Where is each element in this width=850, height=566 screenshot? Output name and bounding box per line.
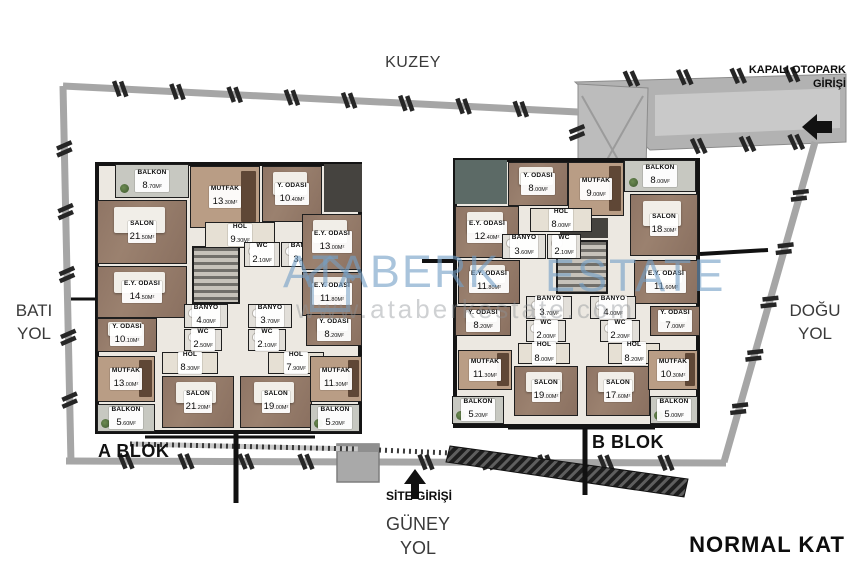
- room: BALKON5.20M²: [452, 396, 504, 424]
- room-area: 11.30M²: [473, 364, 497, 381]
- room-label: WC2.10M²: [255, 329, 278, 352]
- fence-post: [62, 400, 77, 406]
- room: SALON18.30M²: [630, 194, 698, 256]
- fence-post: [114, 81, 119, 96]
- room-area: 3.70M²: [539, 302, 558, 319]
- fence-post: [778, 244, 794, 246]
- room: SALON19.00M²: [514, 366, 578, 416]
- room: SALON19.00M²: [240, 376, 312, 428]
- fence-post: [60, 275, 75, 281]
- room-area: 2.10M²: [554, 241, 573, 258]
- room-area: 19.00M²: [264, 396, 289, 413]
- room-label: HOL8.00M²: [532, 342, 555, 365]
- room-area: 11.30M²: [324, 373, 348, 390]
- room-label: E.Y. ODASI11.80M²: [312, 283, 352, 306]
- fence-post: [732, 404, 748, 406]
- room-area: 11.80M²: [320, 288, 344, 305]
- site-entrance-label: SİTE GİRİŞİ: [364, 489, 474, 503]
- room-area: 5.00M²: [664, 404, 683, 421]
- room-area: 2.50M²: [193, 334, 212, 351]
- fence-post: [419, 455, 425, 470]
- fence-post: [407, 96, 412, 111]
- room-area: 8.20M²: [473, 315, 492, 332]
- room-area: 10.30M²: [661, 364, 686, 381]
- link-wall: [700, 250, 768, 254]
- fence-post: [58, 212, 73, 218]
- fence-post: [400, 96, 405, 111]
- fence-post: [60, 268, 75, 274]
- south-road-line2: YOL: [400, 538, 436, 558]
- room-label: HOL8.30M²: [178, 352, 201, 375]
- room: BALKON8.00M²: [624, 160, 696, 192]
- room: BALKON8.70M²: [115, 164, 189, 198]
- room-area: 8.00M²: [534, 348, 553, 365]
- room-area: 7.90M²: [286, 357, 305, 374]
- fence-post: [343, 93, 348, 108]
- room: Y. ODASI8.20M²: [306, 314, 362, 346]
- page-title: NORMAL KAT: [689, 532, 845, 558]
- fence-post: [178, 84, 183, 99]
- room-label: WC2.20M²: [608, 320, 631, 343]
- fence-post: [171, 84, 176, 99]
- room-area: 13.00M²: [320, 236, 345, 253]
- room-area: 7.00M²: [665, 315, 684, 332]
- room-label: Y. ODASI7.00M²: [658, 310, 691, 333]
- room-label: BANYO3.70M²: [535, 296, 563, 319]
- room-label: Y. ODASI8.20M²: [317, 319, 350, 342]
- room-area: 13.30M²: [213, 191, 238, 208]
- room-label: SALON18.30M²: [650, 214, 679, 237]
- fence-post: [299, 454, 305, 469]
- room: MUTFAK11.30M²: [458, 350, 512, 390]
- fence-post: [186, 454, 192, 469]
- room-area: 3.70M²: [260, 310, 279, 327]
- room-label: MUTFAK10.30M²: [657, 359, 689, 382]
- room: Y. ODASI8.00M²: [508, 162, 568, 206]
- room: SALON17.60M²: [586, 366, 650, 416]
- block-name-label: A BLOK: [98, 441, 169, 462]
- parking-entrance-line1: KAPALI OTOPARK: [749, 64, 846, 76]
- fence-post: [179, 454, 185, 469]
- room-label: BALKON5.00M²: [657, 399, 690, 422]
- room-area: 8.20M²: [624, 348, 643, 365]
- room-label: HOL7.90M²: [284, 352, 307, 375]
- fence-post: [515, 101, 520, 116]
- room-area: 4.00M²: [196, 310, 215, 327]
- room: WC2.00M²: [526, 320, 566, 342]
- room: Y. ODASI8.20M²: [455, 306, 511, 336]
- room-label: WC2.10M²: [250, 243, 273, 266]
- room-label: BANYO3.60M²: [510, 235, 538, 258]
- fence-post: [306, 454, 312, 469]
- room-label: BANYO4.00M²: [192, 305, 220, 328]
- room-area: 14.50M²: [130, 286, 155, 303]
- fence-post: [776, 251, 792, 253]
- south-road-line1: GÜNEY: [386, 514, 450, 534]
- fence-post: [763, 298, 779, 300]
- room-area: 13.00M²: [114, 373, 139, 390]
- room-area: 17.60M²: [606, 385, 631, 402]
- parking-entrance-line2: GİRİŞİ: [813, 78, 846, 90]
- room: Y. ODASI7.00M²: [650, 306, 700, 336]
- room-label: BALKON5.60M²: [109, 407, 142, 430]
- room: WC2.20M²: [600, 320, 640, 342]
- room-label: HOL8.00M²: [549, 209, 572, 232]
- room-area: 2.20M²: [610, 325, 629, 342]
- fence-post: [457, 99, 462, 114]
- entry-fence: [379, 450, 450, 453]
- north-wall: [63, 86, 578, 112]
- fence-post: [293, 90, 298, 105]
- room-area: 5.60M²: [116, 412, 135, 429]
- room-label: BANYO3.70M²: [256, 305, 284, 328]
- stair-core: [192, 246, 240, 304]
- room-label: BALKON5.20M²: [461, 399, 494, 422]
- wall-mass: [455, 160, 507, 204]
- room: Y. ODASI10.10M²: [97, 318, 157, 352]
- room-label: MUTFAK11.30M²: [469, 359, 501, 382]
- fence-post: [745, 358, 761, 360]
- room-area: 21.50M²: [130, 226, 155, 243]
- block-name-label: B BLOK: [592, 432, 664, 453]
- room-label: BALKON8.70M²: [135, 170, 168, 193]
- room: MUTFAK13.00M²: [97, 356, 155, 402]
- room: WC2.10M²: [244, 242, 280, 267]
- wall-mass: [324, 164, 362, 212]
- room-label: Y. ODASI10.40M²: [275, 183, 308, 206]
- room: E.Y. ODASI11.80M²: [302, 272, 362, 316]
- room-area: 8.00M²: [650, 170, 669, 187]
- room: BANYO3.70M²: [526, 296, 572, 319]
- room-area: 8.70M²: [142, 175, 161, 192]
- room-label: MUTFAK13.30M²: [209, 186, 241, 209]
- room: BANYO3.70M²: [248, 304, 292, 328]
- fence-post: [426, 455, 432, 470]
- room: E.Y. ODASI11.60M²: [634, 260, 698, 304]
- room: HOL8.00M²: [518, 343, 570, 364]
- room-area: 11.80M²: [477, 276, 501, 293]
- room-label: SALON19.00M²: [532, 380, 561, 403]
- fence-post: [121, 82, 126, 97]
- garage-ramp: [446, 446, 688, 497]
- fence-post: [747, 351, 763, 353]
- room-area: 2.00M²: [536, 325, 555, 342]
- room-area: 8.00M²: [528, 178, 547, 195]
- room-area: 11.60M²: [654, 276, 678, 293]
- east-road-line1: DOĞU: [790, 301, 841, 320]
- fence-post: [235, 87, 240, 102]
- room: MUTFAK10.30M²: [648, 350, 698, 390]
- room: BALKON5.20M²: [310, 404, 360, 432]
- room: SALON21.20M²: [162, 376, 234, 428]
- room-label: MUTFAK9.00M²: [580, 178, 612, 201]
- room-label: Y. ODASI8.20M²: [466, 310, 499, 333]
- room-label: BALKON8.00M²: [643, 165, 676, 188]
- room-label: Y. ODASI8.00M²: [521, 173, 554, 196]
- room-area: 21.20M²: [186, 396, 211, 413]
- fence-post: [522, 102, 527, 117]
- room-label: MUTFAK11.30M²: [320, 368, 352, 391]
- room-label: WC2.10M²: [552, 235, 575, 258]
- fence-post: [761, 304, 777, 306]
- room-area: 8.20M²: [324, 324, 343, 341]
- room-area: 4.00M²: [603, 302, 622, 319]
- room: BANYO3.60M²: [502, 234, 546, 259]
- room-area: 18.30M²: [652, 219, 677, 236]
- room: E.Y. ODASI14.50M²: [97, 266, 187, 318]
- south-road-label: GÜNEY YOL: [368, 512, 468, 561]
- room: MUTFAK13.30M²: [190, 166, 260, 228]
- room-label: WC2.00M²: [534, 320, 557, 343]
- room-area: 2.10M²: [252, 249, 271, 266]
- room-area: 8.00M²: [551, 214, 570, 231]
- fence-post: [666, 455, 672, 470]
- parking-entrance-label: KAPALI OTOPARK GİRİŞİ: [749, 64, 846, 92]
- room: WC2.50M²: [184, 329, 222, 351]
- fence-post: [350, 93, 355, 108]
- room: HOL8.00M²: [530, 208, 592, 232]
- floor-plan-canvas: BALKON8.70M²MUTFAK13.30M²Y. ODASI10.40M²…: [0, 0, 850, 566]
- room-area: 2.10M²: [257, 334, 276, 351]
- room-label: BANYO4.00M²: [599, 296, 627, 319]
- room-label: E.Y. ODASI11.80M²: [469, 271, 509, 294]
- fence-post: [57, 142, 72, 148]
- fence-post: [239, 454, 245, 469]
- room: HOL8.30M²: [162, 352, 218, 374]
- room-label: BALKON5.20M²: [318, 407, 351, 430]
- room-label: E.Y. ODASI11.60M²: [646, 271, 686, 294]
- east-road-line2: YOL: [798, 324, 832, 343]
- west-road-line2: YOL: [17, 324, 51, 343]
- room: E.Y. ODASI13.00M²: [302, 214, 362, 270]
- fence-post: [791, 198, 807, 200]
- room: BALKON5.00M²: [650, 396, 698, 424]
- room-label: MUTFAK13.00M²: [110, 368, 142, 391]
- room-area: 10.40M²: [280, 188, 305, 205]
- room-label: SALON19.00M²: [262, 391, 291, 414]
- fence-post: [464, 99, 469, 114]
- fence-post: [286, 90, 291, 105]
- fence-post: [57, 149, 72, 155]
- room: WC2.10M²: [547, 234, 581, 259]
- fence-post: [62, 393, 77, 399]
- room-label: E.Y. ODASI13.00M²: [312, 231, 352, 254]
- room-area: 12.40M²: [475, 226, 500, 243]
- room: MUTFAK11.30M²: [310, 356, 362, 402]
- room-area: 5.20M²: [325, 412, 344, 429]
- room-area: 9.00M²: [586, 183, 605, 200]
- fence-post: [246, 454, 252, 469]
- room-label: E.Y. ODASI14.50M²: [122, 281, 162, 304]
- fence-post: [793, 191, 809, 193]
- east-road-label: DOĞU YOL: [782, 300, 848, 346]
- fence-post: [659, 455, 665, 470]
- room-area: 19.00M²: [534, 385, 559, 402]
- room-label: E.Y. ODASI12.40M²: [467, 221, 507, 244]
- west-road-label: BATI YOL: [2, 300, 66, 346]
- room-area: 3.60M²: [514, 241, 533, 258]
- north-road-label: KUZEY: [368, 52, 458, 74]
- room: E.Y. ODASI11.80M²: [458, 260, 520, 304]
- room-label: Y. ODASI10.10M²: [110, 324, 143, 347]
- room: SALON21.50M²: [97, 200, 187, 264]
- room-label: HOL8.20M²: [622, 342, 645, 365]
- room-area: 10.10M²: [115, 329, 140, 346]
- fence-post: [58, 205, 73, 211]
- room: BALKON5.60M²: [97, 404, 155, 432]
- fence-post: [730, 411, 746, 413]
- room-area: 8.30M²: [180, 357, 199, 374]
- room-label: SALON21.50M²: [128, 221, 157, 244]
- west-road-line1: BATI: [16, 301, 53, 320]
- room-label: SALON17.60M²: [604, 380, 633, 403]
- room-label: WC2.50M²: [191, 329, 214, 352]
- room: WC2.10M²: [248, 329, 286, 351]
- room: BANYO4.00M²: [184, 304, 228, 328]
- fence-post: [229, 87, 234, 102]
- room: BANYO4.00M²: [590, 296, 636, 319]
- room-label: SALON21.20M²: [184, 391, 213, 414]
- room-area: 5.20M²: [468, 404, 487, 421]
